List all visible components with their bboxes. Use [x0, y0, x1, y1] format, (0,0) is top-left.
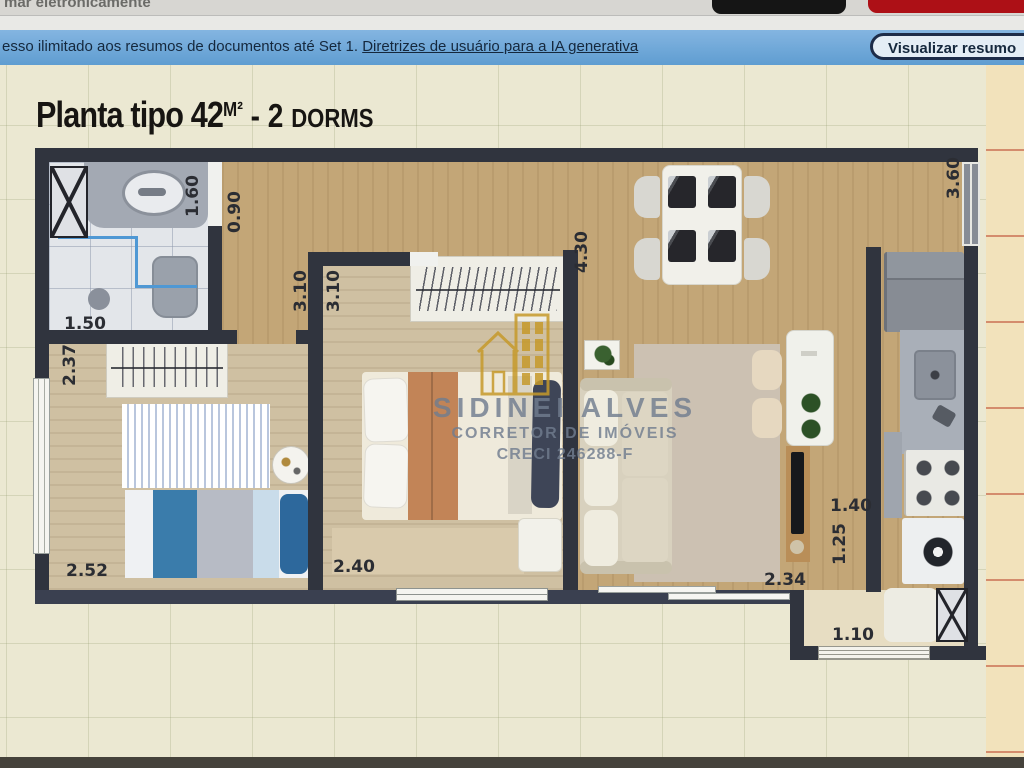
stove: [904, 450, 966, 516]
tv: [791, 452, 804, 534]
dining-chair: [634, 176, 660, 218]
photo-edge: [0, 757, 1024, 768]
washing-machine: [902, 518, 964, 584]
wall-bathroom-right: [208, 226, 222, 332]
dim-dorm2-width: 2.52: [66, 561, 108, 581]
shower-drain: [88, 288, 110, 310]
watermark-name: SIDINEI ALVES: [380, 392, 750, 424]
dining-chair: [634, 238, 660, 280]
banner-text: esso ilimitado aos resumos de documentos…: [2, 38, 358, 55]
kitchen-counter-side: [884, 432, 902, 518]
dorm2-pillow: [280, 494, 308, 574]
living-sliding-door: [598, 584, 790, 602]
kitchen-window: [962, 162, 980, 246]
dim-living-length: 4.30: [572, 230, 592, 274]
dorm2-bed-sheet: [253, 490, 279, 578]
dim-dorm2-depth: 2.37: [60, 343, 80, 387]
bar-stool: [752, 350, 782, 390]
refrigerator: [884, 252, 964, 332]
shower-glass-line: [135, 285, 197, 288]
wall-top: [35, 148, 978, 162]
plan-title-middle: - 2: [243, 97, 291, 134]
shower-glass-line: [135, 236, 138, 288]
banner: esso ilimitado aos resumos de documentos…: [0, 30, 1024, 65]
bathroom-faucet: [138, 188, 166, 196]
dim-kitchen-pass: 1.40: [830, 496, 872, 516]
dorm2-window: [33, 378, 50, 554]
plan-title: Planta tipo 42M² - 2 DORMS: [36, 94, 373, 136]
dorm2-bed-blanket-gray: [197, 490, 253, 578]
dorm2-side-table: [272, 446, 310, 484]
laundry-cabinet: [884, 588, 938, 642]
banner-link[interactable]: Diretrizes de usuário para a IA generati…: [362, 38, 638, 55]
watermark-logo: [476, 312, 551, 396]
placemat: [708, 230, 736, 262]
dining-chair: [744, 238, 770, 280]
dim-bath-width: 1.50: [64, 314, 106, 334]
watermark-role: CORRETOR DE IMÓVEIS: [380, 425, 750, 443]
plan-title-dorms: DORMS: [291, 103, 373, 133]
sofa-back-cushion: [584, 510, 618, 566]
plan-title-unit: M²: [223, 99, 243, 121]
dorm1-door-opening: [410, 252, 438, 266]
sliding-door-pane: [598, 586, 716, 593]
dim-kitchen-length: 3.60: [944, 156, 964, 200]
bathroom-door-opening: [208, 162, 222, 226]
visualizar-resumo-button[interactable]: Visualizar resumo: [870, 33, 1024, 60]
dorm2-wardrobe: [106, 336, 228, 398]
right-margin-band: [986, 65, 1024, 760]
placemat: [668, 230, 696, 262]
watermark-creci: CRECI 246288-F: [380, 446, 750, 464]
kitchen-sink: [914, 350, 956, 400]
dorm2-bed-blanket-blue: [153, 490, 197, 578]
dim-dorm1-depth: 3.10: [324, 269, 344, 313]
dim-dorm1-width: 2.40: [333, 557, 375, 577]
banner-text-wrap: esso ilimitado aos resumos de documentos…: [2, 38, 638, 55]
dim-hall-width: 0.90: [225, 190, 245, 234]
bar-stool: [752, 398, 782, 438]
dorm2-rug: [122, 404, 270, 488]
dim-bath-length: 1.60: [183, 174, 203, 218]
screen: mar eletronicamente esso ilimitado aos r…: [0, 0, 1024, 768]
decor-bowl: [790, 540, 804, 554]
laundry-window: [818, 646, 930, 660]
duct-shaft: [50, 166, 88, 238]
kitchen-island: [786, 330, 834, 446]
living-plant-box: [584, 340, 620, 370]
white-strip: [0, 15, 1024, 31]
wall-kitchen-divider: [866, 247, 881, 592]
dorm1-nightstand: [518, 518, 562, 572]
dim-hall-length: 3.10: [291, 269, 311, 313]
dorm1-window: [396, 588, 548, 601]
dim-laundry-width: 1.25: [830, 522, 850, 566]
top-partial-text: mar eletronicamente: [4, 0, 151, 11]
dining-chair: [744, 176, 770, 218]
top-bar-dark-button[interactable]: [712, 0, 846, 14]
wall-dorm1-top: [308, 252, 410, 266]
dim-laundry-window: 1.10: [832, 625, 874, 645]
placemat: [708, 176, 736, 208]
sofa-seat-cushion: [622, 478, 668, 562]
dim-balcony-door: 2.34: [764, 570, 806, 590]
top-bar-red-button[interactable]: [868, 0, 1024, 13]
sliding-door-pane: [668, 593, 790, 600]
plan-title-prefix: Planta tipo 42: [36, 94, 223, 135]
placemat: [668, 176, 696, 208]
duct-shaft: [936, 588, 968, 642]
